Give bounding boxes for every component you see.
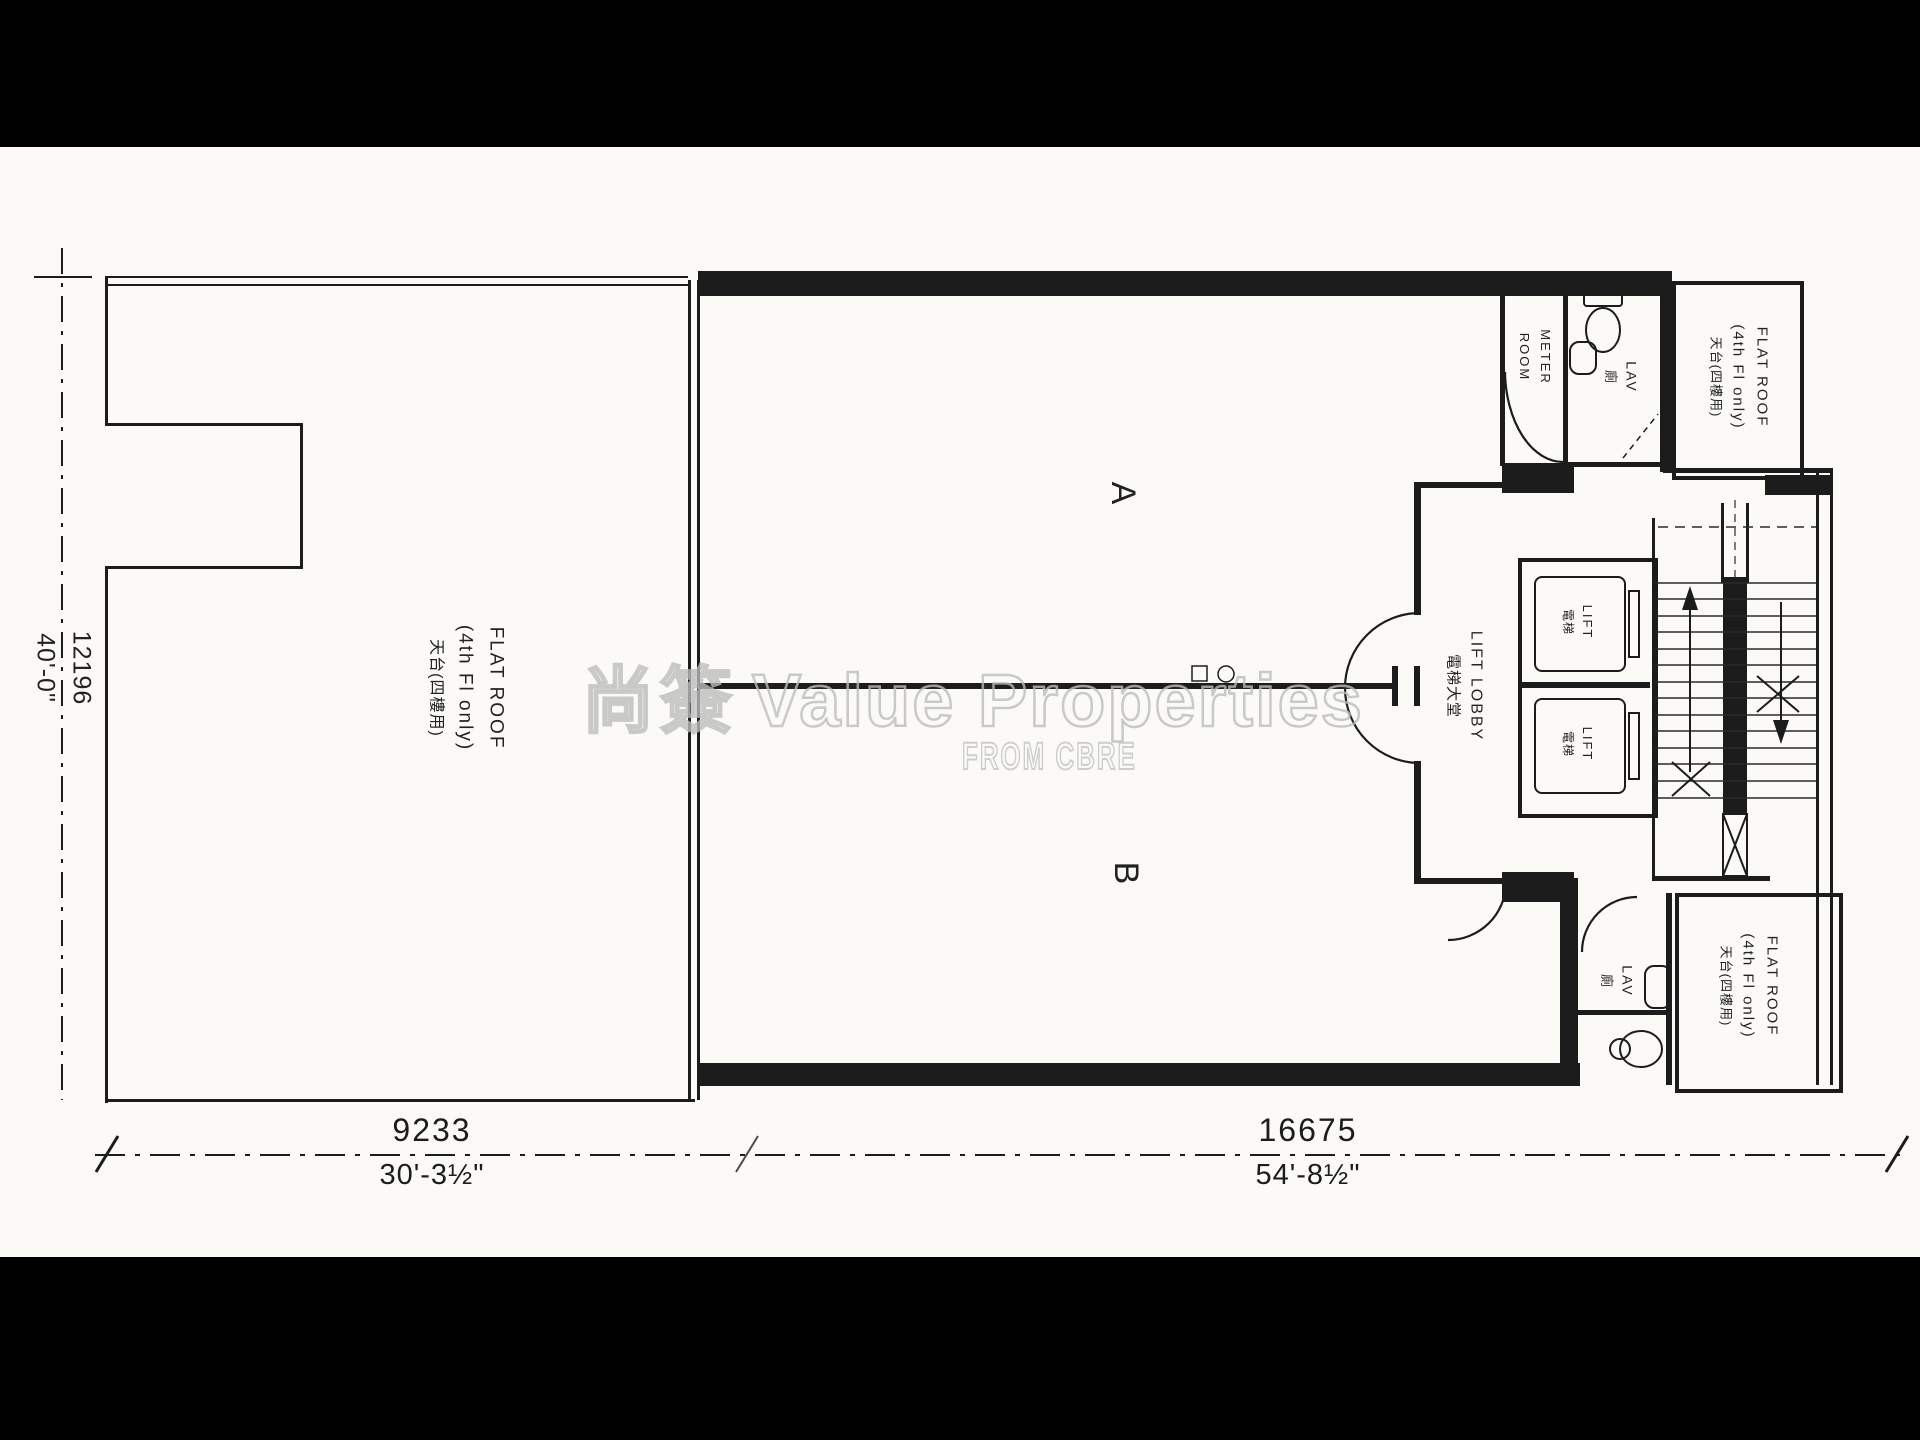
watermark-source: FROM CBRE: [962, 736, 1137, 779]
wc-cistern-upper: [1584, 288, 1622, 306]
flat-roof-br-cn: 天台(四樓用): [1715, 933, 1736, 1038]
stair-arrowhead-up: [1682, 586, 1698, 610]
flat-roof-tr-cn: 天台(四樓用): [1705, 324, 1726, 429]
lift-lower-en: LIFT: [1577, 727, 1597, 762]
dim-bl-imperial: 30'-3½": [379, 1152, 484, 1198]
lav-lower-cn: 廁: [1597, 965, 1617, 996]
letterbox-bottom: [0, 1257, 1920, 1440]
lav-upper-en: LAV: [1620, 361, 1641, 392]
flat-roof-left-note: (4th Fl only): [449, 625, 480, 751]
lift-lobby-cn: 電梯大堂: [1441, 631, 1464, 741]
door-swing-lav-upper: [1623, 414, 1658, 458]
door-arc-meter-room: [1505, 372, 1563, 462]
staircase-hatch: [1723, 814, 1747, 876]
flat-roof-tr-en: FLAT ROOF: [1749, 324, 1773, 429]
stair-arrowhead-down: [1773, 720, 1789, 744]
lav-lower-en: LAV: [1616, 965, 1637, 996]
flat-roof-tr-note: (4th Fl only): [1725, 324, 1749, 429]
flat-roof-br-en: FLAT ROOF: [1759, 933, 1783, 1038]
door-arc-lobby-lower: [1448, 884, 1506, 940]
lift-lobby-en: LIFT LOBBY: [1463, 631, 1487, 741]
sanitary-fixtures: [1570, 288, 1671, 1067]
door-arcs: [1345, 372, 1658, 952]
wc-bowl-lower: [1620, 1031, 1662, 1067]
watermark-cjk: 尚簽: [582, 662, 738, 742]
dim-br-metric: 16675: [1255, 1108, 1360, 1152]
door-arc-lav-lower: [1582, 897, 1637, 952]
lav-upper-cn: 廁: [1601, 361, 1621, 392]
lift-upper-en: LIFT: [1577, 605, 1597, 640]
flat-roof-left-en: FLAT ROOF: [480, 625, 511, 751]
wc-bowl-upper: [1586, 308, 1620, 352]
flat-roof-left-cn: 天台(四樓用): [422, 625, 448, 751]
watermark-brand: Value Properties: [752, 659, 1364, 742]
screenshot-stage: FLAT ROOF (4th Fl only) 天台(四樓用) A B LIFT…: [0, 0, 1920, 1440]
flat-roof-br-note: (4th Fl only): [1735, 933, 1759, 1038]
staircase-treads: [1655, 500, 1816, 798]
dim-bl-metric: 9233: [379, 1108, 484, 1152]
meter-room-line2: ROOM: [1513, 329, 1534, 385]
letterbox-top: [0, 0, 1920, 147]
dim-bottom-left-label: 9233 30'-3½": [379, 1108, 484, 1198]
basin-lower: [1645, 966, 1671, 1008]
meter-room-line1: METER: [1534, 329, 1555, 385]
dim-br-imperial: 54'-8½": [1255, 1152, 1360, 1198]
dim-left-imperial: 40'-0": [27, 631, 63, 706]
lift-upper-cn: 電梯: [1559, 605, 1577, 640]
watermark: 尚簽Value Properties: [582, 642, 1364, 747]
dim-left-metric: 12196: [63, 631, 99, 706]
dim-bottom-right-label: 16675 54'-8½": [1255, 1108, 1360, 1198]
lift-lower-cn: 電梯: [1559, 727, 1577, 762]
